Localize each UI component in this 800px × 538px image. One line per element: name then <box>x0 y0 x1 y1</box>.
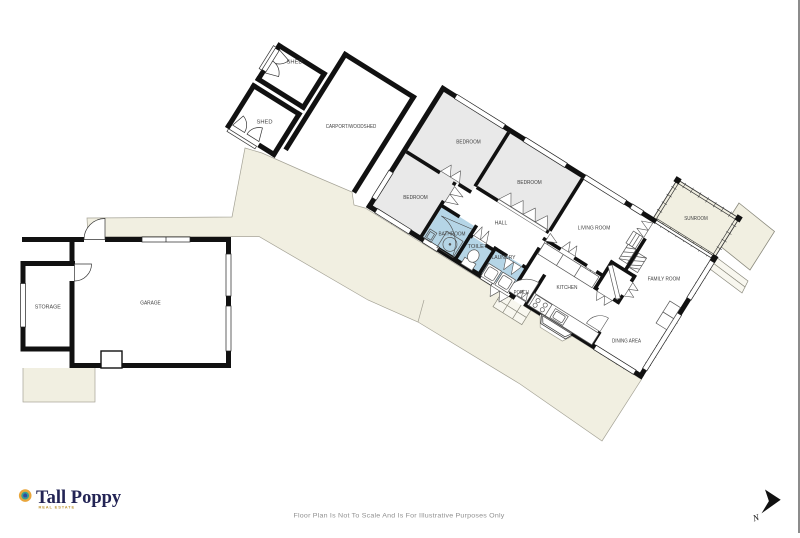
svg-text:BEDROOM: BEDROOM <box>517 180 542 186</box>
svg-text:TOILET: TOILET <box>468 244 489 250</box>
svg-text:SUNROOM: SUNROOM <box>684 216 708 222</box>
svg-text:PORCH: PORCH <box>514 290 529 296</box>
svg-text:BATHROOM: BATHROOM <box>439 232 466 238</box>
svg-text:DINING AREA: DINING AREA <box>612 339 641 345</box>
svg-text:FAMILY ROOM: FAMILY ROOM <box>648 277 681 283</box>
svg-text:HALL: HALL <box>495 221 508 227</box>
svg-text:SHED: SHED <box>257 120 273 126</box>
svg-text:GARAGE: GARAGE <box>140 300 161 306</box>
svg-text:CARPORT/WOODSHED: CARPORT/WOODSHED <box>326 124 377 130</box>
svg-text:REAL ESTATE: REAL ESTATE <box>39 505 75 510</box>
svg-text:SHED: SHED <box>287 60 303 66</box>
svg-text:BEDROOM: BEDROOM <box>456 140 481 146</box>
svg-text:LIVING ROOM: LIVING ROOM <box>578 226 611 232</box>
svg-text:LAUNDRY: LAUNDRY <box>492 255 516 261</box>
svg-text:KITCHEN: KITCHEN <box>557 285 578 291</box>
svg-text:STORAGE: STORAGE <box>35 304 61 310</box>
svg-text:BEDROOM: BEDROOM <box>403 195 428 201</box>
svg-text:Floor Plan Is Not To Scale And: Floor Plan Is Not To Scale And Is For Il… <box>294 513 506 520</box>
